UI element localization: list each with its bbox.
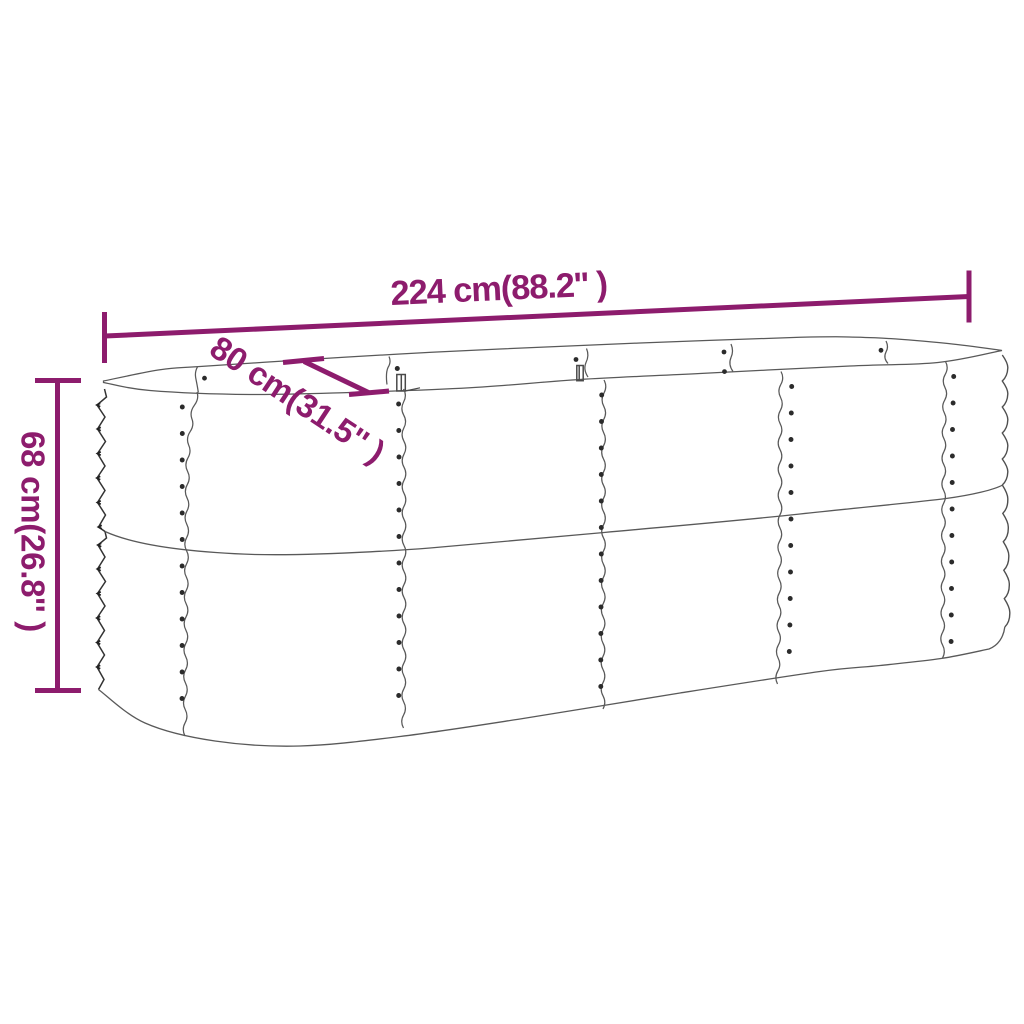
svg-text:80 cm(31.5'' ): 80 cm(31.5'' ) [203,329,391,471]
svg-text:68 cm(26.8'' ): 68 cm(26.8'' ) [14,431,51,632]
svg-text:224 cm(88.2'' ): 224 cm(88.2'' ) [390,265,608,313]
